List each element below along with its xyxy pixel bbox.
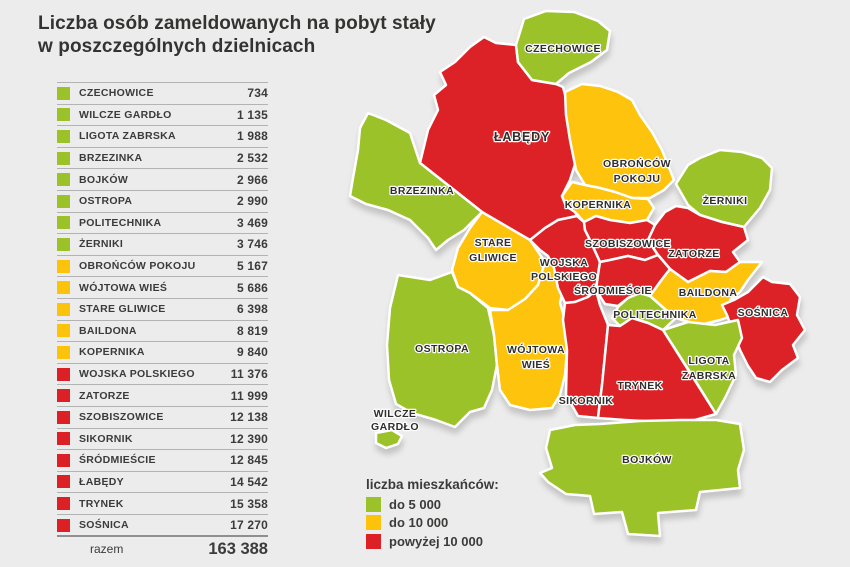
table-row: WILCZE GARDŁO1 135 bbox=[57, 104, 268, 126]
district-value: 5 167 bbox=[237, 259, 268, 273]
district-value: 1 135 bbox=[237, 108, 268, 122]
district-label-czechowice: CZECHOWICE bbox=[525, 43, 601, 55]
district-shape-bojkow bbox=[540, 420, 744, 536]
legend-item: do 10 000 bbox=[366, 514, 499, 533]
district-value: 2 966 bbox=[237, 173, 268, 187]
district-label-bojkow: BOJKÓW bbox=[622, 453, 672, 466]
district-label-zerniki: ŻERNIKI bbox=[703, 194, 748, 207]
district-name: TRYNEK bbox=[79, 498, 124, 510]
district-name: WOJSKA POLSKIEGO bbox=[79, 368, 195, 380]
total-label: razem bbox=[90, 542, 123, 556]
district-name: OSTROPA bbox=[79, 195, 132, 207]
district-name: POLITECHNIKA bbox=[79, 217, 161, 229]
district-value: 9 840 bbox=[237, 345, 268, 359]
category-chip bbox=[57, 281, 70, 294]
table-row: OBROŃCÓW POKOJU5 167 bbox=[57, 255, 268, 277]
district-name: SIKORNIK bbox=[79, 433, 133, 445]
page-title: Liczba osób zameldowanych na pobyt stały… bbox=[38, 12, 436, 58]
district-label-baildona: BAILDONA bbox=[679, 287, 738, 299]
legend-title: liczba mieszkańców: bbox=[366, 477, 499, 492]
district-name: KOPERNIKA bbox=[79, 346, 145, 358]
district-name: OBROŃCÓW POKOJU bbox=[79, 260, 196, 272]
district-label-wilcze-gardlo: WILCZEGARDŁO bbox=[371, 408, 419, 433]
district-value: 1 988 bbox=[237, 129, 268, 143]
district-value: 17 270 bbox=[230, 518, 268, 532]
district-value: 12 390 bbox=[230, 432, 268, 446]
district-value: 15 358 bbox=[230, 497, 268, 511]
category-chip bbox=[57, 108, 70, 121]
table-row: BAILDONA8 819 bbox=[57, 320, 268, 342]
category-chip bbox=[57, 454, 70, 467]
legend-label: do 5 000 bbox=[389, 497, 441, 512]
district-name: ŻERNIKI bbox=[79, 238, 123, 250]
table-row: OSTROPA2 990 bbox=[57, 190, 268, 212]
district-value: 8 819 bbox=[237, 324, 268, 338]
district-label-politechnika: POLITECHNIKA bbox=[613, 309, 697, 321]
district-name: BAILDONA bbox=[79, 325, 137, 337]
district-value: 12 845 bbox=[230, 453, 268, 467]
district-name: CZECHOWICE bbox=[79, 87, 154, 99]
infographic-root: ŁABĘDY CZECHOWICE BRZEZINKA OBROŃCÓWPOKO… bbox=[0, 0, 850, 567]
legend-label: powyżej 10 000 bbox=[389, 534, 483, 549]
category-chip bbox=[57, 87, 70, 100]
district-value: 734 bbox=[247, 86, 268, 100]
table-row: ŻERNIKI3 746 bbox=[57, 233, 268, 255]
district-value: 12 138 bbox=[230, 410, 268, 424]
category-chip bbox=[57, 432, 70, 445]
category-chip bbox=[57, 216, 70, 229]
district-value: 3 746 bbox=[237, 237, 268, 251]
table-row: WÓJTOWA WIEŚ5 686 bbox=[57, 276, 268, 298]
legend-item: do 5 000 bbox=[366, 495, 499, 514]
legend-item: powyżej 10 000 bbox=[366, 532, 499, 551]
category-chip bbox=[57, 346, 70, 359]
page-title-line2: w poszczególnych dzielnicach bbox=[38, 35, 436, 58]
table-row: ŚRÓDMIEŚCIE12 845 bbox=[57, 449, 268, 471]
district-value: 5 686 bbox=[237, 281, 268, 295]
table-row: ZATORZE11 999 bbox=[57, 384, 268, 406]
district-label-sikornik: SIKORNIK bbox=[559, 395, 614, 407]
district-value: 2 990 bbox=[237, 194, 268, 208]
table-row: TRYNEK15 358 bbox=[57, 492, 268, 514]
category-chip bbox=[57, 368, 70, 381]
category-chip bbox=[57, 130, 70, 143]
category-chip bbox=[57, 152, 70, 165]
table-total-row: razem 163 388 bbox=[57, 535, 268, 561]
legend-chip bbox=[366, 534, 381, 549]
table-row: SOŚNICA17 270 bbox=[57, 514, 268, 536]
map-legend: liczba mieszkańców: do 5 000 do 10 000 p… bbox=[366, 477, 499, 551]
district-name: ZATORZE bbox=[79, 390, 130, 402]
category-chip bbox=[57, 303, 70, 316]
district-label-sosnica: SOŚNICA bbox=[738, 306, 789, 319]
table-row: BRZEZINKA2 532 bbox=[57, 147, 268, 169]
table-row: WOJSKA POLSKIEGO11 376 bbox=[57, 363, 268, 385]
table-row: BOJKÓW2 966 bbox=[57, 168, 268, 190]
district-name: LIGOTA ZABRSKA bbox=[79, 130, 176, 142]
district-label-ostropa: OSTROPA bbox=[415, 343, 469, 355]
table-row: SZOBISZOWICE12 138 bbox=[57, 406, 268, 428]
table-row: STARE GLIWICE6 398 bbox=[57, 298, 268, 320]
legend-chip bbox=[366, 497, 381, 512]
district-name: BOJKÓW bbox=[79, 174, 128, 186]
district-name: ŚRÓDMIEŚCIE bbox=[79, 454, 156, 466]
district-name: SOŚNICA bbox=[79, 519, 129, 531]
category-chip bbox=[57, 238, 70, 251]
table-row: LIGOTA ZABRSKA1 988 bbox=[57, 125, 268, 147]
district-name: SZOBISZOWICE bbox=[79, 411, 164, 423]
category-chip bbox=[57, 411, 70, 424]
category-chip bbox=[57, 260, 70, 273]
district-name: WILCZE GARDŁO bbox=[79, 109, 172, 121]
legend-label: do 10 000 bbox=[389, 515, 448, 530]
district-name: ŁABĘDY bbox=[79, 476, 124, 488]
district-label-labedy: ŁABĘDY bbox=[494, 130, 550, 144]
table-row: ŁABĘDY14 542 bbox=[57, 471, 268, 493]
legend-chip bbox=[366, 515, 381, 530]
category-chip bbox=[57, 324, 70, 337]
total-value: 163 388 bbox=[208, 540, 268, 559]
district-label-srodmiescie: ŚRÓDMIEŚCIE bbox=[574, 284, 652, 297]
category-chip bbox=[57, 173, 70, 186]
category-chip bbox=[57, 389, 70, 402]
district-name: WÓJTOWA WIEŚ bbox=[79, 282, 167, 294]
category-chip bbox=[57, 497, 70, 510]
district-value: 14 542 bbox=[230, 475, 268, 489]
district-label-brzezinka: BRZEZINKA bbox=[390, 185, 454, 197]
district-label-zatorze: ZATORZE bbox=[668, 248, 719, 260]
table-row: KOPERNIKA9 840 bbox=[57, 341, 268, 363]
table-row: POLITECHNIKA3 469 bbox=[57, 212, 268, 234]
district-label-szobiszowice: SZOBISZOWICE bbox=[585, 238, 671, 250]
table-row: CZECHOWICE734 bbox=[57, 82, 268, 104]
district-label-kopernika: KOPERNIKA bbox=[565, 199, 632, 211]
table-row: SIKORNIK12 390 bbox=[57, 428, 268, 450]
district-value: 6 398 bbox=[237, 302, 268, 316]
district-name: STARE GLIWICE bbox=[79, 303, 166, 315]
district-name: BRZEZINKA bbox=[79, 152, 142, 164]
page-title-line1: Liczba osób zameldowanych na pobyt stały bbox=[38, 12, 436, 35]
district-value: 3 469 bbox=[237, 216, 268, 230]
district-value: 2 532 bbox=[237, 151, 268, 165]
category-chip bbox=[57, 475, 70, 488]
district-value: 11 999 bbox=[231, 389, 268, 403]
district-label-trynek: TRYNEK bbox=[617, 380, 662, 392]
category-chip bbox=[57, 519, 70, 532]
category-chip bbox=[57, 195, 70, 208]
district-table: CZECHOWICE734 WILCZE GARDŁO1 135 LIGOTA … bbox=[57, 82, 268, 561]
district-value: 11 376 bbox=[231, 367, 268, 381]
